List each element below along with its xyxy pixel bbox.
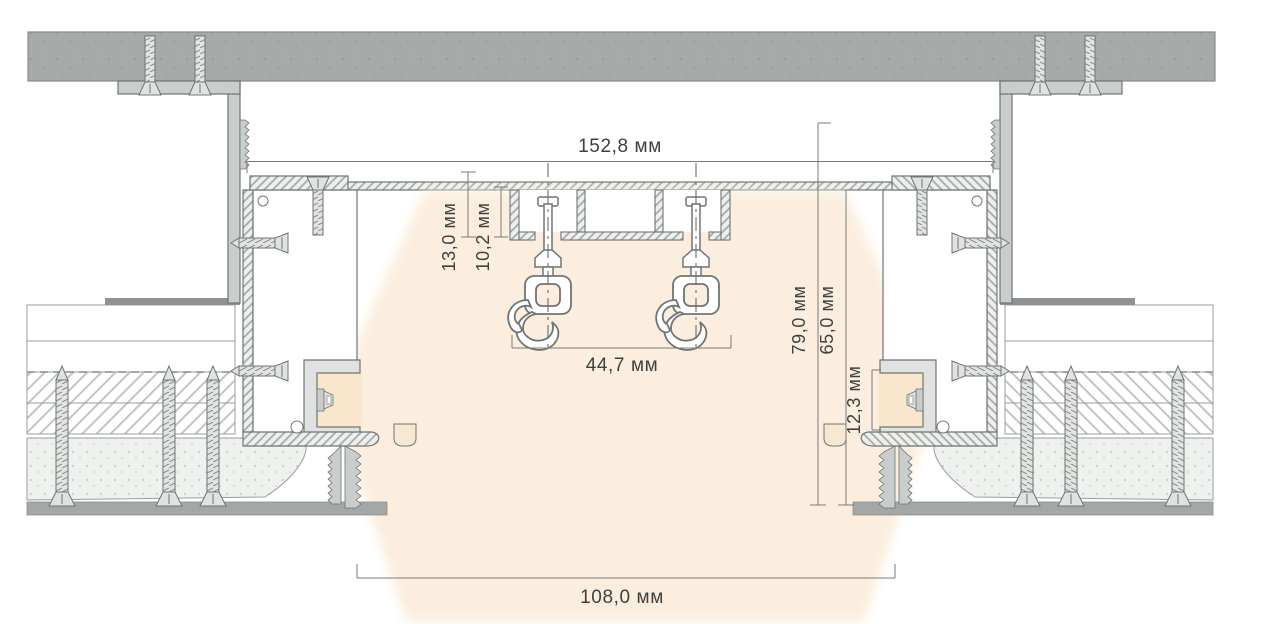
track-wall: [721, 190, 730, 240]
dim-niche-height-inner-label: 65,0 мм: [817, 286, 837, 355]
dim-niche-height-outer-label: 79,0 мм: [789, 286, 809, 355]
left-side-assembly: [27, 36, 416, 515]
dim-hook-spacing-label: 44,7 мм: [586, 355, 659, 376]
track-bottom-lip: [709, 232, 721, 240]
track-bottom-lip: [519, 232, 535, 240]
light-beam: [344, 191, 926, 622]
track-bottom: [561, 232, 683, 240]
dim-top-width-label: 152,8 мм: [578, 136, 662, 157]
track-divider: [577, 190, 585, 232]
track-wall: [510, 190, 519, 240]
track-top-plate: [250, 182, 990, 190]
dim-led-module-height-label: 12,3 мм: [844, 366, 864, 435]
dim-top-width: [247, 161, 993, 173]
dim-bottom-opening-label: 108,0 мм: [580, 587, 664, 608]
dim-track-height-label: 13,0 мм: [439, 203, 459, 272]
curtain-niche-cross-section: 152,8 мм 13,0 мм 10,2 мм 44,7 мм 79,0 мм…: [0, 0, 1279, 624]
track-divider: [655, 190, 663, 232]
dim-glider-channel-label: 10,2 мм: [473, 203, 493, 272]
diagram-canvas: 152,8 мм 13,0 мм 10,2 мм 44,7 мм 79,0 мм…: [0, 0, 1279, 624]
